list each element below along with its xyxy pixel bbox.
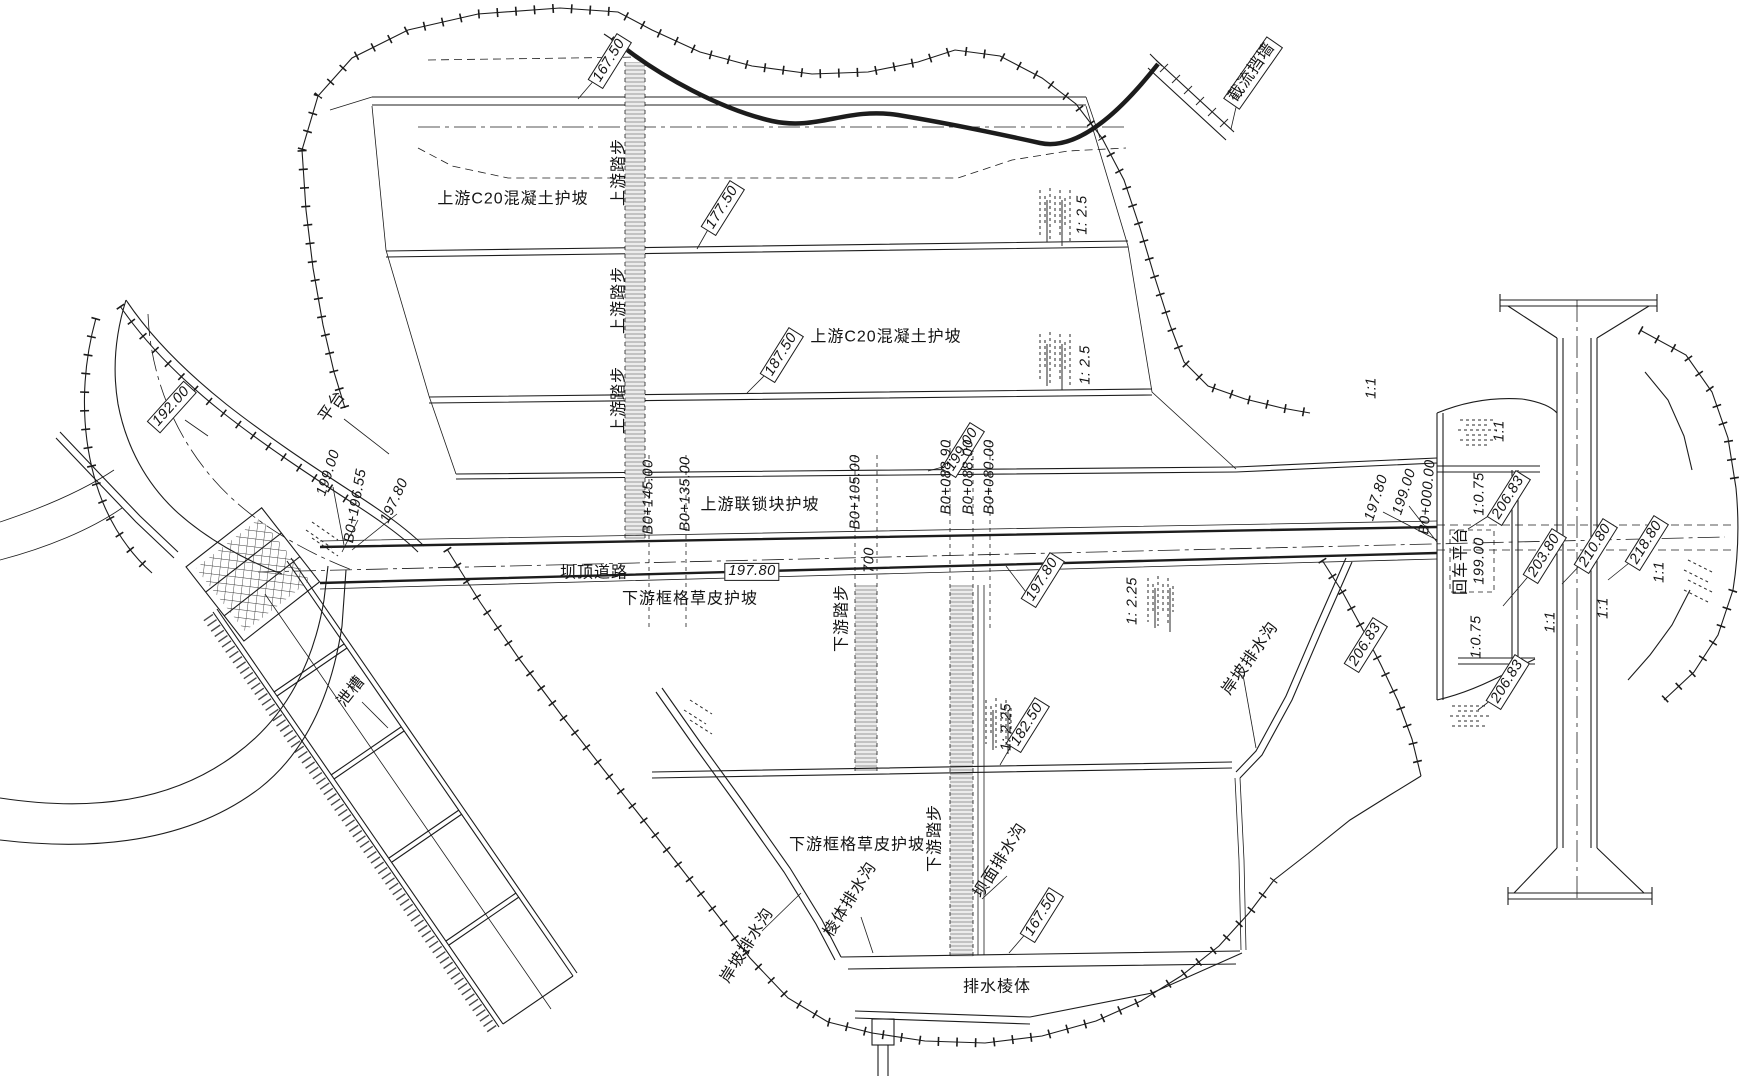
slope-1-1-d: 1:1 xyxy=(1596,597,1611,619)
elev-197-80-downstream: 197.80 xyxy=(1021,552,1066,609)
station-b0-135: B0+135.00 xyxy=(678,456,693,531)
elev-167-50-upstream: 167.50 xyxy=(588,33,633,90)
bank-drain-right: 岸坡排水沟 xyxy=(1220,619,1283,698)
elev-206-83-c: 206.83 xyxy=(1486,654,1531,711)
station-b0-105: B0+105.00 xyxy=(848,454,863,529)
labels-layer: 167.50上游踏步上游C20混凝土护坡177.501: 2.5上游踏步上游C2… xyxy=(0,0,1741,1079)
elev-197-80-road: 197.80 xyxy=(724,563,779,581)
slope-1-1-a: 1:1 xyxy=(1364,377,1379,399)
downstream-grass-slope-1: 下游框格草皮护坡 xyxy=(622,592,758,609)
closure-wall-label: 截流挡墙 xyxy=(1223,36,1283,110)
elev-210-80: 210.80 xyxy=(1574,518,1619,575)
elev-177-50: 177.50 xyxy=(701,180,746,237)
platform-label: 平台 xyxy=(316,388,349,425)
elev-206-83-a: 206.83 xyxy=(1487,470,1532,527)
downstream-grass-slope-2: 下游框格草皮护坡 xyxy=(789,838,925,855)
slope-1-0-75-b: 1:0.75 xyxy=(1469,615,1484,658)
slope-1-2-25-a: 1: 2.25 xyxy=(1125,577,1140,625)
upstream-steps-2: 上游踏步 xyxy=(612,266,629,334)
station-b0-000: B0+000.00 xyxy=(1417,459,1439,535)
downstream-steps-1: 下游踏步 xyxy=(835,584,852,652)
elev-197-80-right: 197.80 xyxy=(1362,473,1391,523)
chute-label: 泄槽 xyxy=(335,673,369,710)
dam-face-drain: 坝面排水沟 xyxy=(971,821,1030,902)
dim-700: 700 xyxy=(862,547,877,573)
elev-206-83-b: 206.83 xyxy=(1344,617,1389,674)
elev-167-50-downstream: 167.50 xyxy=(1020,887,1065,944)
slope-1-1-c: 1:1 xyxy=(1652,561,1667,583)
upstream-steps-3: 上游踏步 xyxy=(612,366,629,434)
slope-1-2-5-a: 1: 2.5 xyxy=(1075,195,1090,234)
downstream-steps-2: 下游踏步 xyxy=(928,804,945,872)
slope-1-2-25-b: 1: 2.25 xyxy=(999,703,1014,751)
dam-plan-drawing: 167.50上游踏步上游C20混凝土护坡177.501: 2.5上游踏步上游C2… xyxy=(0,0,1741,1079)
crest-road-label: 坝顶道路 xyxy=(560,566,628,583)
elev-197-80-left: 197.80 xyxy=(378,476,412,525)
upstream-interlock-slope: 上游联锁块护坡 xyxy=(700,498,819,515)
elev-199-00-left: 199.00 xyxy=(314,448,343,498)
turnaround-elev: 199.00 xyxy=(1472,537,1487,584)
slope-1-2-5-b: 1: 2.5 xyxy=(1078,345,1093,384)
slope-1-1-b: 1:1 xyxy=(1492,420,1507,442)
station-b0-088-00: B0+088.00 xyxy=(961,439,976,514)
elev-187-50: 187.50 xyxy=(760,327,805,384)
elev-199-00-right: 199.00 xyxy=(1390,467,1419,517)
upstream-c20-slope-2: 上游C20混凝土护坡 xyxy=(810,330,961,347)
turnaround-platform: 回车平台 xyxy=(1454,527,1471,595)
station-b0-088-90: B0+088.90 xyxy=(939,439,954,514)
station-b0-196-55: B0+196.55 xyxy=(342,468,370,545)
upstream-c20-slope-1: 上游C20混凝土护坡 xyxy=(437,192,588,209)
upstream-steps-1: 上游踏步 xyxy=(612,138,629,206)
slope-1-0-75-a: 1:0.75 xyxy=(1472,472,1487,515)
prism-drain: 棱体排水沟 xyxy=(821,860,880,941)
slope-1-1-e: 1:1 xyxy=(1543,611,1558,633)
bank-drain-left: 岸坡排水沟 xyxy=(718,906,777,987)
station-b0-145: B0+145.00 xyxy=(641,459,656,534)
elev-203-80: 203.80 xyxy=(1523,528,1568,585)
station-b0-080-00: B0+080.00 xyxy=(982,439,997,514)
drainage-prism: 排水棱体 xyxy=(963,980,1031,997)
elev-192-00: 192.00 xyxy=(147,380,198,433)
